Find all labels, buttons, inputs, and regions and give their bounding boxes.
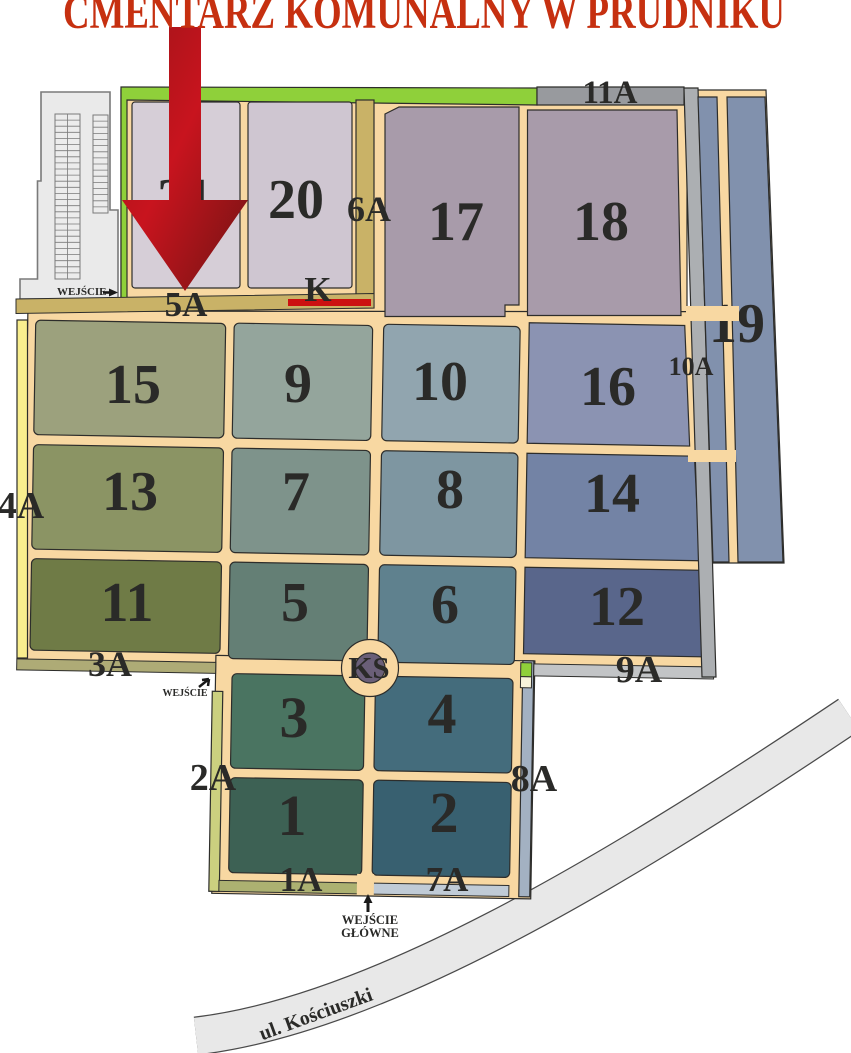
svg-text:8: 8 [436, 459, 464, 521]
svg-text:GŁÓWNE: GŁÓWNE [341, 926, 399, 940]
svg-text:7: 7 [282, 461, 310, 523]
svg-text:K: K [304, 270, 331, 309]
svg-text:4: 4 [428, 681, 457, 746]
svg-text:5A: 5A [165, 285, 209, 324]
svg-text:WEJŚCIE: WEJŚCIE [342, 913, 398, 927]
svg-text:15: 15 [105, 354, 161, 416]
svg-text:1: 1 [278, 783, 307, 848]
svg-text:4A: 4A [0, 485, 45, 527]
svg-text:CMENTARZ KOMUNALNY W PRUDNIKU: CMENTARZ KOMUNALNY W PRUDNIKU [63, 0, 785, 39]
svg-text:2: 2 [430, 780, 459, 845]
svg-text:18: 18 [573, 191, 629, 253]
svg-text:14: 14 [584, 463, 640, 525]
svg-text:11A: 11A [582, 75, 637, 111]
svg-text:1A: 1A [280, 860, 324, 899]
svg-text:3A: 3A [88, 644, 132, 684]
svg-text:17: 17 [428, 191, 484, 253]
svg-text:2A: 2A [190, 757, 237, 799]
svg-text:16: 16 [580, 356, 636, 418]
svg-text:KS: KS [348, 650, 389, 685]
svg-text:11: 11 [101, 572, 154, 634]
svg-text:9: 9 [284, 353, 312, 415]
svg-text:9A: 9A [616, 649, 663, 691]
svg-text:6: 6 [431, 574, 459, 636]
svg-text:12: 12 [589, 576, 645, 638]
svg-text:20: 20 [268, 169, 324, 231]
svg-text:8A: 8A [511, 758, 558, 800]
svg-text:WEJŚCIE: WEJŚCIE [57, 286, 107, 298]
svg-text:3: 3 [280, 685, 309, 750]
svg-text:7A: 7A [426, 860, 470, 899]
svg-text:10A: 10A [669, 352, 714, 381]
svg-text:5: 5 [281, 572, 309, 634]
svg-text:6A: 6A [347, 189, 391, 229]
svg-text:19: 19 [709, 293, 765, 355]
svg-text:13: 13 [102, 461, 158, 523]
svg-text:WEJŚCIE: WEJŚCIE [162, 687, 207, 699]
svg-text:10: 10 [412, 351, 468, 413]
